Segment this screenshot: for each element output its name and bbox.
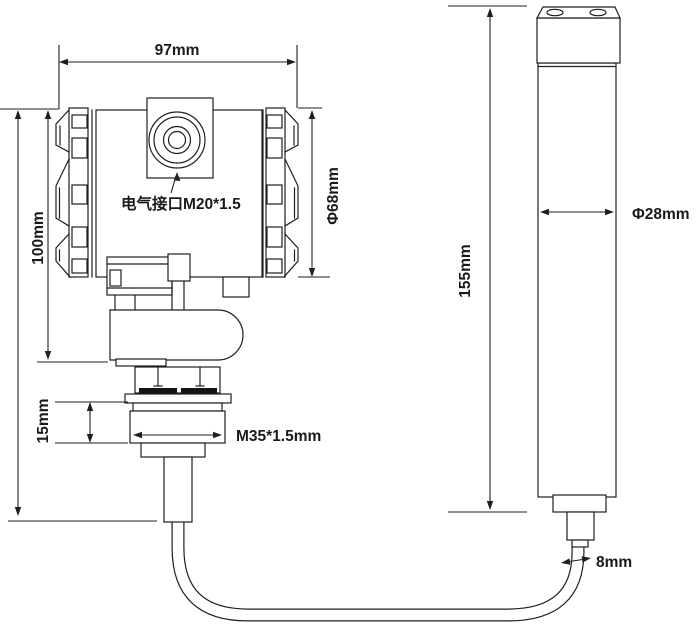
- seal-gasket-left: [139, 388, 177, 394]
- probe-body: [538, 63, 616, 497]
- label-cable-diameter: 8mm: [596, 554, 632, 571]
- connection-cable: [178, 522, 578, 615]
- label-thread: M35*1.5mm: [236, 428, 321, 445]
- seal-gasket-right: [181, 388, 217, 394]
- housing-right-flange: [262, 108, 298, 277]
- label-housing-diameter: Φ68mm: [325, 167, 342, 225]
- probe-cap: [537, 18, 620, 63]
- technical-drawing: 97mm 100mm Φ68mm 电气接口M20*1.5 15mm M35*1.…: [0, 0, 700, 629]
- label-housing-height: 100mm: [30, 211, 47, 264]
- dimension-nut-height: [55, 402, 128, 443]
- drawing-canvas: 97mm 100mm Φ68mm 电气接口M20*1.5 15mm M35*1.…: [0, 0, 700, 629]
- label-electrical-interface: 电气接口M20*1.5: [121, 194, 241, 213]
- label-nut-height: 15mm: [35, 399, 52, 444]
- mounting-nut: [130, 411, 225, 443]
- label-probe-diameter: Φ28mm: [632, 206, 690, 223]
- process-connection: [110, 310, 243, 522]
- transmitter-housing: [56, 98, 298, 522]
- housing-left-flange: [56, 108, 92, 277]
- label-housing-width: 97mm: [155, 42, 200, 59]
- cable-entry-tube: [164, 457, 192, 522]
- electrical-gland: [147, 98, 213, 178]
- probe-cable-gland: [567, 512, 594, 540]
- label-probe-length: 155mm: [457, 244, 474, 297]
- sensor-probe: [537, 7, 620, 547]
